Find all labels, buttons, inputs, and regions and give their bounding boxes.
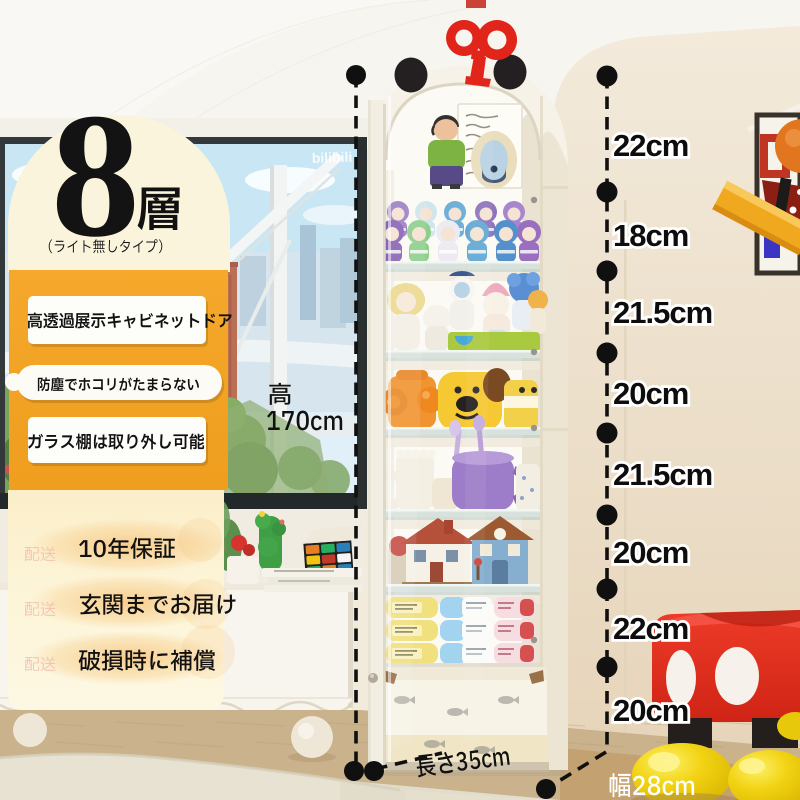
svg-text:bilibili: bilibili <box>312 149 353 166</box>
svg-text:20cm: 20cm <box>613 535 688 570</box>
svg-text:8: 8 <box>51 76 140 274</box>
svg-text:18cm: 18cm <box>613 218 688 253</box>
svg-text:22cm: 22cm <box>613 611 688 646</box>
svg-text:20cm: 20cm <box>613 693 688 728</box>
svg-text:21.5cm: 21.5cm <box>613 295 712 330</box>
svg-text:21.5cm: 21.5cm <box>613 457 712 492</box>
svg-text:20cm: 20cm <box>613 376 688 411</box>
svg-text:22cm: 22cm <box>613 128 688 163</box>
